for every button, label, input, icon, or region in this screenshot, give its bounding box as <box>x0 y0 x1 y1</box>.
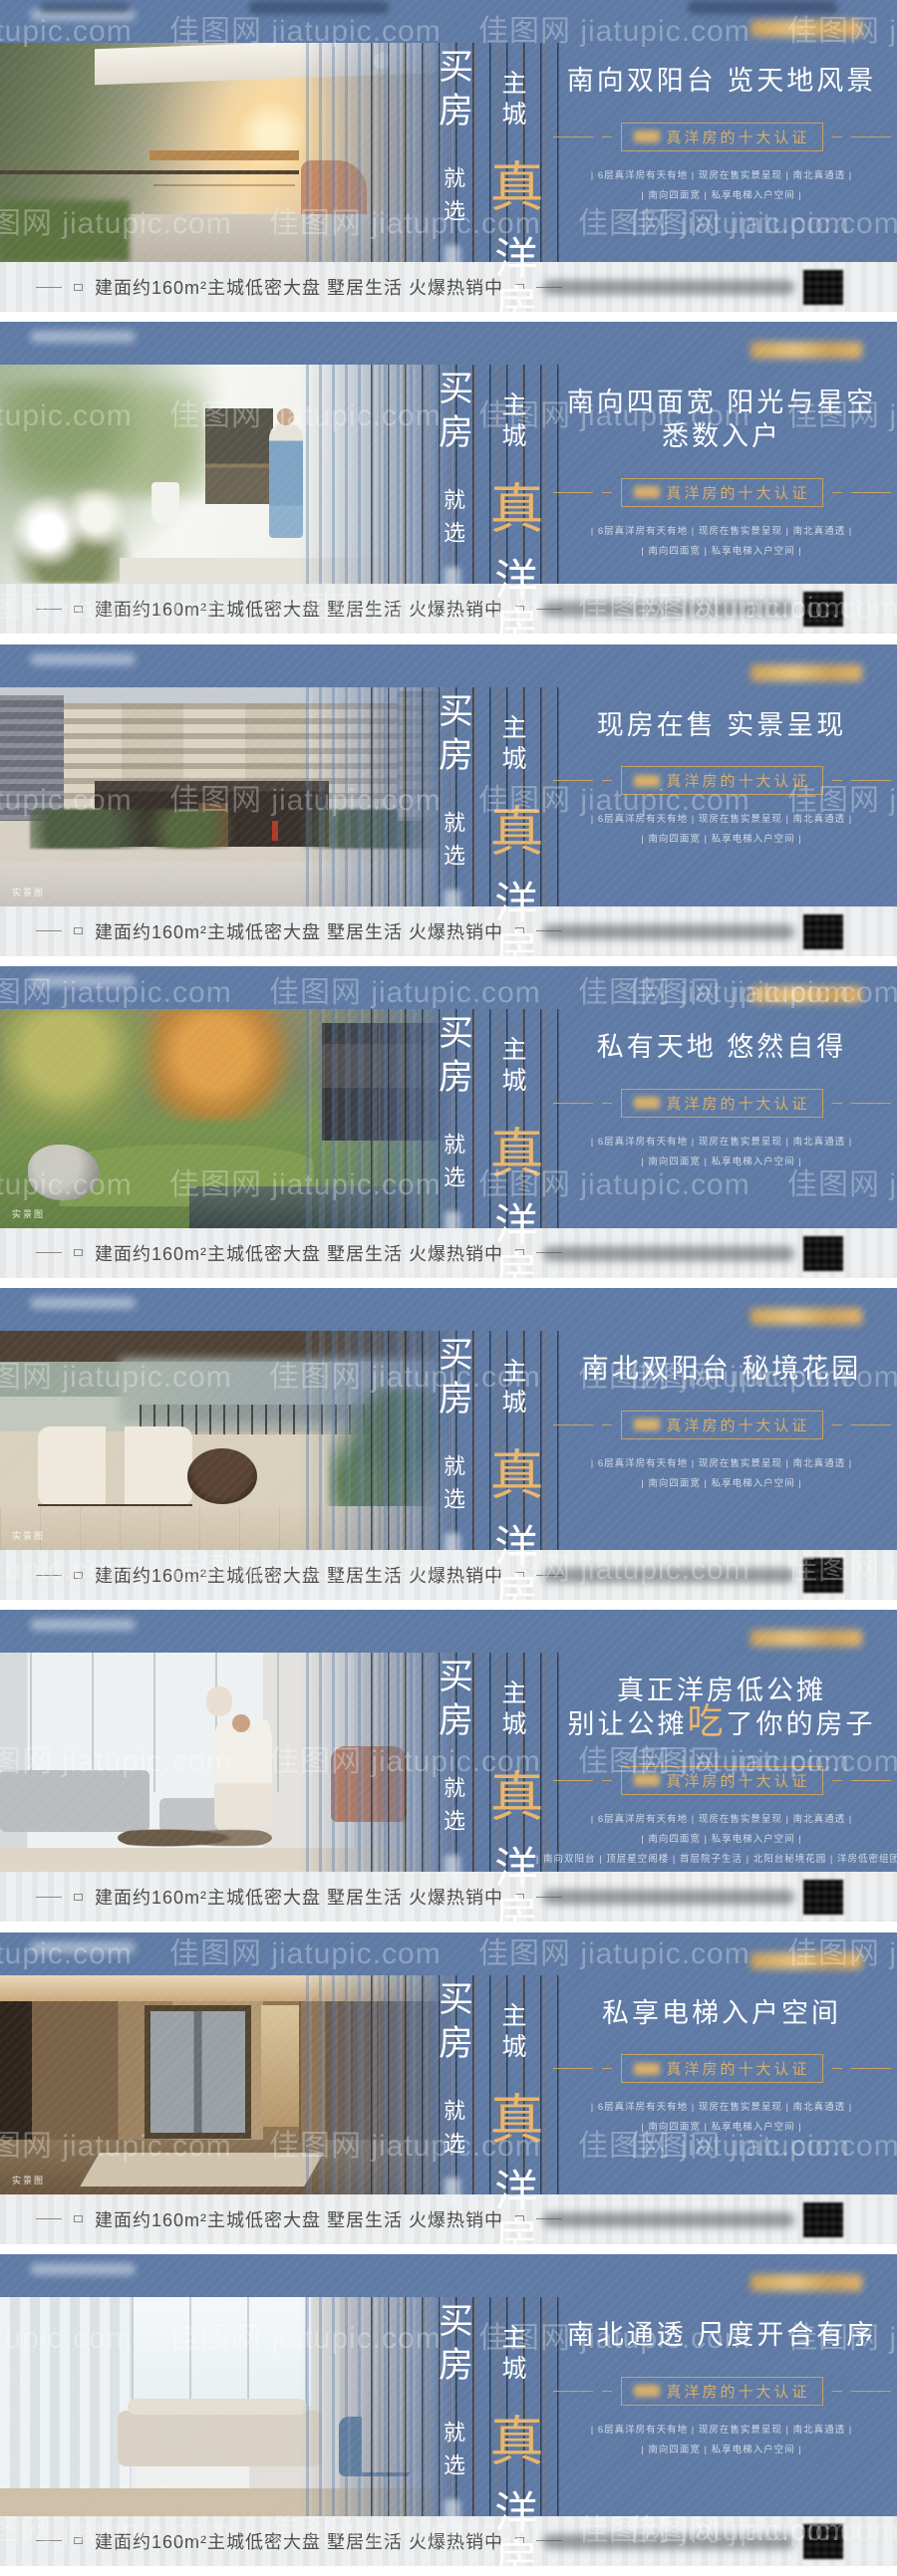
bar-dash-left <box>36 609 62 610</box>
banner-right-content: 现房在售 实景呈现 真洋房的十大认证 | 6层真洋房有天有地 | 现房在售实景呈… <box>556 687 887 906</box>
feature-line-2: | 南向四面宽 | 私享电梯入户空间 | <box>641 1475 801 1489</box>
residential-building-entrance-photo: 实景图 <box>0 687 453 906</box>
banner-headline: 真正洋房低公摊 别让公摊吃了你的房子 <box>567 1674 875 1742</box>
badge-line-left <box>553 2068 593 2069</box>
property-ad-banner: 实景图 买房 就选 主城 真 洋房 私有天地 悠然自得 <box>0 966 897 1288</box>
badge-tick-left <box>602 780 612 781</box>
badge-label: 真洋房的十大认证 <box>667 770 810 791</box>
photo-caption-tag: 实景图 <box>12 1529 45 1542</box>
certification-badge: 真洋房的十大认证 <box>553 2377 891 2406</box>
blurred-brand-logo <box>750 986 862 1003</box>
slogan-accent-zhen: 真 <box>481 1115 541 1178</box>
blurred-watermark-streak <box>30 975 136 987</box>
slogan-choose: 就选 <box>441 797 465 877</box>
feature-line-1: | 6层真洋房有天有地 | 现房在售实景呈现 | 南北真通透 | <box>591 811 853 825</box>
certification-badge: 真洋房的十大认证 <box>553 1411 891 1439</box>
banner-right-content: 南向双阳台 览天地风景 真洋房的十大认证 | 6层真洋房有天有地 | 现房在售实… <box>556 43 887 262</box>
photo-shape <box>214 1708 272 1830</box>
headline-line2: 南向四面宽 阳光与星空悉数入户 <box>556 386 887 454</box>
badge-line-right <box>851 1780 891 1781</box>
blurred-badge-logo <box>634 130 660 142</box>
feature-line-2: | 南向四面宽 | 私享电梯入户空间 | <box>641 2442 801 2455</box>
blurred-watermark-streak <box>30 1619 136 1631</box>
private-elevator-hall-photo: 实景图 <box>0 1975 453 2194</box>
photo-fade-overlay <box>299 43 453 262</box>
blurred-brand-logo <box>750 664 862 681</box>
blurred-brand-logo <box>750 1952 862 1969</box>
blurred-qr-code <box>803 1880 843 1915</box>
photo-fade-overlay <box>299 1331 453 1550</box>
slogan-accent-zhen: 真 <box>481 793 541 857</box>
bar-square-left <box>74 284 83 291</box>
slogan-accent-zhen: 真 <box>481 1758 541 1822</box>
feature-list: | 6层真洋房有天有地 | 现房在售实景呈现 | 南北真通透 | | 南向四面宽… <box>591 167 853 201</box>
headline-line2: 别让公摊吃了你的房子 <box>567 1708 875 1742</box>
photo-fade-overlay <box>299 1653 453 1872</box>
badge-box: 真洋房的十大认证 <box>621 478 823 507</box>
feature-list: | 6层真洋房有天有地 | 现房在售实景呈现 | 南北真通透 | | 南向四面宽… <box>591 1455 853 1489</box>
slogan-column-right: 主城 真 洋房 <box>484 1658 538 1922</box>
headline-line2: 现房在售 实景呈现 <box>597 709 847 743</box>
photo-shape <box>0 2297 132 2488</box>
property-ad-banner: 实景图 买房 就选 主城 真 洋房 南向四面宽 阳光与星空悉数入户 <box>0 322 897 644</box>
banner-headline: 现房在售 实景呈现 <box>597 709 847 743</box>
banner-right-content: 南北双阳台 秘境花园 真洋房的十大认证 | 6层真洋房有天有地 | 现房在售实景… <box>556 1331 887 1550</box>
bar-square-left <box>74 1894 83 1901</box>
photo-fade-overlay <box>299 687 453 906</box>
badge-line-left <box>553 2391 593 2392</box>
badge-line-left <box>553 780 593 781</box>
photo-caption-tag: 实景图 <box>12 886 45 899</box>
bar-square-left <box>74 606 83 613</box>
slogan-column-right: 主城 真 洋房 <box>484 2302 538 2566</box>
headline-line2: 南北通透 尺度开合有序 <box>567 2319 877 2353</box>
slogan-main-city: 主城 <box>498 714 525 776</box>
badge-tick-right <box>832 136 842 137</box>
badge-line-left <box>553 1103 593 1104</box>
bar-dash-left <box>36 1252 62 1253</box>
badge-tick-right <box>832 1103 842 1104</box>
feature-line-1: | 6层真洋房有天有地 | 现房在售实景呈现 | 南北真通透 | <box>591 1455 853 1469</box>
slogan-yangfang: 洋房 <box>487 874 536 956</box>
feature-line-2: | 南向四面宽 | 私享电梯入户空间 | <box>641 1154 801 1167</box>
photo-shape <box>151 482 179 524</box>
blurred-qr-code <box>803 2202 843 2237</box>
slogan-choose: 就选 <box>441 1440 465 1520</box>
blurred-seal-mark <box>445 890 460 919</box>
photo-shape <box>132 2297 311 2407</box>
bar-dash-left <box>36 287 62 288</box>
badge-label: 真洋房的十大认证 <box>667 1415 810 1435</box>
badge-line-right <box>851 136 891 137</box>
badge-tick-left <box>602 492 612 493</box>
photo-shape <box>0 695 64 821</box>
blurred-contact-info <box>543 2534 794 2549</box>
blurred-watermark-streak <box>30 9 136 21</box>
blurred-contact-info <box>543 602 794 617</box>
badge-label: 真洋房的十大认证 <box>667 482 810 503</box>
photo-shape <box>0 383 209 497</box>
photo-shape <box>187 1448 257 1504</box>
blurred-seal-mark <box>445 1855 460 1885</box>
photo-shape <box>0 1770 149 1832</box>
badge-box: 真洋房的十大认证 <box>621 123 823 151</box>
feature-line-1: | 6层真洋房有天有地 | 现房在售实景呈现 | 南北真通透 | <box>591 2422 853 2436</box>
blurred-qr-code <box>803 1236 843 1271</box>
feature-list: | 6层真洋房有天有地 | 现房在售实景呈现 | 南北真通透 | | 南向四面宽… <box>591 811 853 845</box>
property-ad-banner: 实景图 买房 就选 主城 真 洋房 南北双阳台 秘境花园 <box>0 1288 897 1610</box>
photo-shape <box>28 1145 100 1200</box>
blurred-brand-logo <box>750 1308 862 1325</box>
photo-shape <box>149 150 299 160</box>
slogan-yangfang: 洋房 <box>487 2483 536 2566</box>
blurred-brand-logo <box>750 20 862 37</box>
blurred-contact-info <box>543 2212 794 2227</box>
badge-box: 真洋房的十大认证 <box>621 1089 823 1118</box>
feature-line-3: | 南向双阳台 | 顶层星空阁楼 | 首层院子生活 | 北阳台秘境花园 | 洋房… <box>536 1851 897 1865</box>
badge-box: 真洋房的十大认证 <box>621 2377 823 2406</box>
badge-label: 真洋房的十大认证 <box>667 1770 810 1791</box>
feature-line-1: | 6层真洋房有天有地 | 现房在售实景呈现 | 南北真通透 | <box>591 1811 853 1825</box>
photo-shape <box>0 1009 164 1131</box>
certification-badge: 真洋房的十大认证 <box>553 766 891 795</box>
slogan-buy-house: 买房 <box>434 1014 472 1102</box>
badge-line-left <box>553 1424 593 1425</box>
banner-right-content: 私享电梯入户空间 真洋房的十大认证 | 6层真洋房有天有地 | 现房在售实景呈现… <box>556 1975 887 2194</box>
slogan-accent-zhen: 真 <box>481 2403 541 2466</box>
banner-canvas: 实景图 买房 就选 主城 真 洋房 现房在售 实景呈现 <box>0 644 897 956</box>
badge-box: 真洋房的十大认证 <box>621 766 823 795</box>
blurred-seal-mark <box>445 2178 460 2207</box>
blurred-badge-logo <box>634 1097 660 1109</box>
slogan-accent-zhen: 真 <box>481 470 541 534</box>
slogan-accent-zhen: 真 <box>481 148 541 212</box>
bar-square-left <box>74 2215 83 2222</box>
blurred-seal-mark <box>445 567 460 597</box>
badge-tick-right <box>832 2068 842 2069</box>
slogan-column-right: 主城 真 洋房 <box>484 48 538 312</box>
slogan-choose: 就选 <box>441 474 465 554</box>
headline-line2: 私享电梯入户空间 <box>602 1997 841 2031</box>
feature-line-2: | 南向四面宽 | 私享电梯入户空间 | <box>641 543 801 557</box>
slogan-choose: 就选 <box>441 2085 465 2165</box>
property-ad-banner: 实景图 买房 就选 主城 真 洋房 南北通透 尺度开合有序 <box>0 2254 897 2576</box>
slogan-accent-zhen: 真 <box>481 2081 541 2145</box>
photo-caption-tag: 实景图 <box>12 2174 45 2187</box>
photo-shape <box>118 2411 322 2466</box>
badge-label: 真洋房的十大认证 <box>667 2058 810 2079</box>
banner-headline: 南北通透 尺度开合有序 <box>567 2319 877 2353</box>
slogan-column-right: 主城 真 洋房 <box>484 1336 538 1600</box>
certification-badge: 真洋房的十大认证 <box>553 1766 891 1795</box>
feature-list: | 6层真洋房有天有地 | 现房在售实景呈现 | 南北真通透 | | 南向四面宽… <box>591 2099 853 2133</box>
slogan-column-right: 主城 真 洋房 <box>484 370 538 634</box>
blurred-watermark-streak <box>30 331 136 343</box>
badge-line-left <box>553 1780 593 1781</box>
badge-line-right <box>851 2391 891 2392</box>
photo-fade-overlay <box>299 365 453 584</box>
property-ad-banner: 实景图 买房 就选 主城 真 洋房 真正洋房低公摊 别让公摊吃了你的房子 <box>0 1610 897 1932</box>
banner-right-content: 私有天地 悠然自得 真洋房的十大认证 | 6层真洋房有天有地 | 现房在售实景呈… <box>556 1009 887 1228</box>
blurred-watermark-streak <box>30 1941 136 1953</box>
slogan-column-right: 主城 真 洋房 <box>484 1014 538 1278</box>
certification-badge: 真洋房的十大认证 <box>553 123 891 151</box>
banner-headline: 南北双阳台 秘境花园 <box>582 1353 862 1387</box>
slogan-yangfang: 洋房 <box>487 2162 536 2244</box>
blurred-qr-code <box>803 1558 843 1593</box>
badge-line-right <box>851 1424 891 1425</box>
photo-shape <box>38 1426 192 1506</box>
courtyard-garden-pond-photo: 实景图 <box>0 1009 453 1228</box>
badge-box: 真洋房的十大认证 <box>621 1766 823 1795</box>
slogan-main-city: 主城 <box>498 1036 525 1098</box>
blurred-qr-code <box>803 270 843 305</box>
slogan-buy-house: 买房 <box>434 48 472 135</box>
feature-list: | 6层真洋房有天有地 | 现房在售实景呈现 | 南北真通透 | | 南向四面宽… <box>591 2422 853 2455</box>
blurred-watermark-streak <box>30 1297 136 1309</box>
headline-line2: 私有天地 悠然自得 <box>597 1031 847 1065</box>
blurred-badge-logo <box>634 775 660 787</box>
slogan-column-right: 主城 真 洋房 <box>484 692 538 956</box>
slogan-buy-house: 买房 <box>434 1658 472 1745</box>
badge-tick-left <box>602 2391 612 2392</box>
badge-box: 真洋房的十大认证 <box>621 1411 823 1439</box>
badge-label: 真洋房的十大认证 <box>667 1093 810 1114</box>
slogan-main-city: 主城 <box>498 1679 525 1741</box>
certification-badge: 真洋房的十大认证 <box>553 1089 891 1118</box>
feature-line-1: | 6层真洋房有天有地 | 现房在售实景呈现 | 南北真通透 | <box>591 2099 853 2113</box>
slogan-choose: 就选 <box>441 1762 465 1842</box>
slogan-main-city: 主城 <box>498 2324 525 2386</box>
badge-tick-right <box>832 780 842 781</box>
banner-canvas: 实景图 买房 就选 主城 真 洋房 真正洋房低公摊 别让公摊吃了你的房子 <box>0 1610 897 1922</box>
badge-line-left <box>553 492 593 493</box>
blurred-seal-mark <box>445 1211 460 1241</box>
slogan-choose: 就选 <box>441 152 465 232</box>
feature-list: | 6层真洋房有天有地 | 现房在售实景呈现 | 南北真通透 | | 南向四面宽… <box>591 1134 853 1167</box>
banner-headline: 私享电梯入户空间 <box>602 1997 841 2031</box>
photo-shape <box>269 422 303 538</box>
blurred-watermark-streak <box>30 2263 136 2275</box>
slogan-yangfang: 洋房 <box>487 1517 536 1600</box>
slogan-main-city: 主城 <box>498 70 525 131</box>
blurred-contact-info <box>543 1246 794 1261</box>
feature-line-2: | 南向四面宽 | 私享电梯入户空间 | <box>641 1831 801 1845</box>
blurred-seal-mark <box>445 245 460 275</box>
family-living-room-photo: 实景图 <box>0 1653 453 1872</box>
woman-painting-balcony-photo: 实景图 <box>0 365 453 584</box>
photo-shape <box>80 2153 324 2187</box>
blurred-badge-logo <box>634 2385 660 2397</box>
bar-square-left <box>74 2537 83 2544</box>
blurred-seal-mark <box>445 2499 460 2529</box>
photo-fade-overlay <box>299 1009 453 1228</box>
bar-dash-left <box>36 2218 62 2219</box>
badge-line-right <box>851 780 891 781</box>
banner-headline: 私有天地 悠然自得 <box>597 1031 847 1065</box>
banner-series: 实景图 买房 就选 主城 真 洋房 南向双阳台 览天地风景 <box>0 0 897 2576</box>
slogan-buy-house: 买房 <box>434 1336 472 1423</box>
badge-line-right <box>851 2068 891 2069</box>
property-ad-banner: 实景图 买房 就选 主城 真 洋房 南向双阳台 览天地风景 <box>0 0 897 322</box>
badge-tick-right <box>832 492 842 493</box>
badge-tick-left <box>602 136 612 137</box>
bar-square-left <box>74 1572 83 1579</box>
badge-label: 真洋房的十大认证 <box>667 127 810 147</box>
blurred-badge-logo <box>634 1774 660 1786</box>
banner-right-content: 南北通透 尺度开合有序 真洋房的十大认证 | 6层真洋房有天有地 | 现房在售实… <box>556 2297 887 2516</box>
blurred-badge-logo <box>634 486 660 498</box>
slogan-choose: 就选 <box>441 2407 465 2486</box>
banner-headline: 南向双阳台 览天地风景 <box>567 65 877 99</box>
banner-right-content: 南向四面宽 阳光与星空悉数入户 真洋房的十大认证 | 6层真洋房有天有地 | 现… <box>556 365 887 584</box>
blurred-contact-info <box>543 924 794 939</box>
feature-list: | 6层真洋房有天有地 | 现房在售实景呈现 | 南北真通透 | | 南向四面宽… <box>536 1811 897 1865</box>
terrace-lounge-armchairs-photo: 实景图 <box>0 1331 453 1550</box>
feature-list: | 6层真洋房有天有地 | 现房在售实景呈现 | 南北真通透 | | 南向四面宽… <box>591 523 853 557</box>
slogan-yangfang: 洋房 <box>487 1195 536 1278</box>
photo-shape <box>0 200 130 262</box>
badge-tick-left <box>602 1424 612 1425</box>
slogan-accent-zhen: 真 <box>481 1436 541 1500</box>
blurred-brand-logo <box>750 342 862 359</box>
blurred-brand-logo <box>750 2274 862 2291</box>
bright-living-room-photo: 实景图 <box>0 2297 453 2516</box>
banner-canvas: 实景图 买房 就选 主城 真 洋房 南北通透 尺度开合有序 <box>0 2254 897 2566</box>
slogan-buy-house: 买房 <box>434 692 472 780</box>
badge-tick-right <box>832 1780 842 1781</box>
blurred-contact-info <box>543 1890 794 1905</box>
bar-dash-left <box>36 1575 62 1576</box>
property-ad-banner: 实景图 买房 就选 主城 真 洋房 现房在售 实景呈现 <box>0 644 897 966</box>
slogan-yangfang: 洋房 <box>487 551 536 634</box>
feature-line-1: | 6层真洋房有天有地 | 现房在售实景呈现 | 南北真通透 | <box>591 1134 853 1148</box>
banner-canvas: 实景图 买房 就选 主城 真 洋房 南北双阳台 秘境花园 <box>0 1288 897 1600</box>
banner-canvas: 实景图 买房 就选 主城 真 洋房 南向双阳台 览天地风景 <box>0 0 897 312</box>
banner-right-content: 真正洋房低公摊 别让公摊吃了你的房子 真洋房的十大认证 | 6层真洋房有天有地 … <box>556 1653 887 1872</box>
slogan-yangfang: 洋房 <box>487 1839 536 1922</box>
badge-tick-right <box>832 2391 842 2392</box>
certification-badge: 真洋房的十大认证 <box>553 478 891 507</box>
bar-square-left <box>74 1249 83 1256</box>
feature-line-2: | 南向四面宽 | 私享电梯入户空间 | <box>641 187 801 201</box>
banner-canvas: 实景图 买房 就选 主城 真 洋房 私有天地 悠然自得 <box>0 966 897 1278</box>
blurred-contact-info <box>543 280 794 295</box>
slogan-yangfang: 洋房 <box>487 229 536 312</box>
feature-line-1: | 6层真洋房有天有地 | 现房在售实景呈现 | 南北真通透 | <box>591 167 853 181</box>
blurred-qr-code <box>803 592 843 627</box>
balcony-terrace-garden-photo: 实景图 <box>0 43 453 262</box>
bar-square-left <box>74 927 83 934</box>
photo-shape <box>0 170 299 174</box>
blurred-badge-logo <box>634 2063 660 2075</box>
blurred-badge-logo <box>634 1418 660 1430</box>
blurred-qr-code <box>803 914 843 949</box>
blurred-seal-mark <box>445 1533 460 1563</box>
photo-shape <box>145 2005 251 2139</box>
badge-tick-left <box>602 1103 612 1104</box>
feature-line-2: | 南向四面宽 | 私享电梯入户空间 | <box>641 2119 801 2133</box>
photo-shape <box>205 408 273 504</box>
slogan-main-city: 主城 <box>498 2002 525 2064</box>
banner-canvas: 实景图 买房 就选 主城 真 洋房 私享电梯入户空间 <box>0 1932 897 2244</box>
badge-line-left <box>553 136 593 137</box>
badge-line-right <box>851 1103 891 1104</box>
blurred-watermark-streak <box>30 653 136 665</box>
headline-line2: 南北双阳台 秘境花园 <box>582 1353 862 1387</box>
photo-shape <box>261 2005 299 2127</box>
badge-tick-left <box>602 1780 612 1781</box>
slogan-choose: 就选 <box>441 1119 465 1198</box>
slogan-column-right: 主城 真 洋房 <box>484 1980 538 2244</box>
slogan-buy-house: 买房 <box>434 2302 472 2390</box>
slogan-main-city: 主城 <box>498 391 525 453</box>
banner-canvas: 实景图 买房 就选 主城 真 洋房 南向四面宽 阳光与星空悉数入户 <box>0 322 897 634</box>
blurred-contact-info <box>543 1568 794 1583</box>
blurred-brand-logo <box>750 1630 862 1647</box>
badge-tick-left <box>602 2068 612 2069</box>
bar-dash-left <box>36 2540 62 2541</box>
bar-dash-left <box>36 930 62 931</box>
slogan-buy-house: 买房 <box>434 1980 472 2068</box>
headline-line2: 南向双阳台 览天地风景 <box>567 65 877 99</box>
badge-tick-right <box>832 1424 842 1425</box>
bar-dash-left <box>36 1897 62 1898</box>
photo-fade-overlay <box>299 2297 453 2516</box>
feature-line-2: | 南向四面宽 | 私享电梯入户空间 | <box>641 831 801 845</box>
photo-caption-tag: 实景图 <box>12 1207 45 1220</box>
photo-fade-overlay <box>299 1975 453 2194</box>
property-ad-banner: 实景图 买房 就选 主城 真 洋房 私享电梯入户空间 <box>0 1932 897 2254</box>
badge-line-right <box>851 492 891 493</box>
blurred-qr-code <box>803 2524 843 2559</box>
certification-badge: 真洋房的十大认证 <box>553 2054 891 2083</box>
slogan-buy-house: 买房 <box>434 370 472 457</box>
slogan-main-city: 主城 <box>498 1358 525 1419</box>
badge-label: 真洋房的十大认证 <box>667 2381 810 2402</box>
banner-headline: 南向四面宽 阳光与星空悉数入户 <box>556 386 887 454</box>
feature-line-1: | 6层真洋房有天有地 | 现房在售实景呈现 | 南北真通透 | <box>591 523 853 537</box>
badge-box: 真洋房的十大认证 <box>621 2054 823 2083</box>
